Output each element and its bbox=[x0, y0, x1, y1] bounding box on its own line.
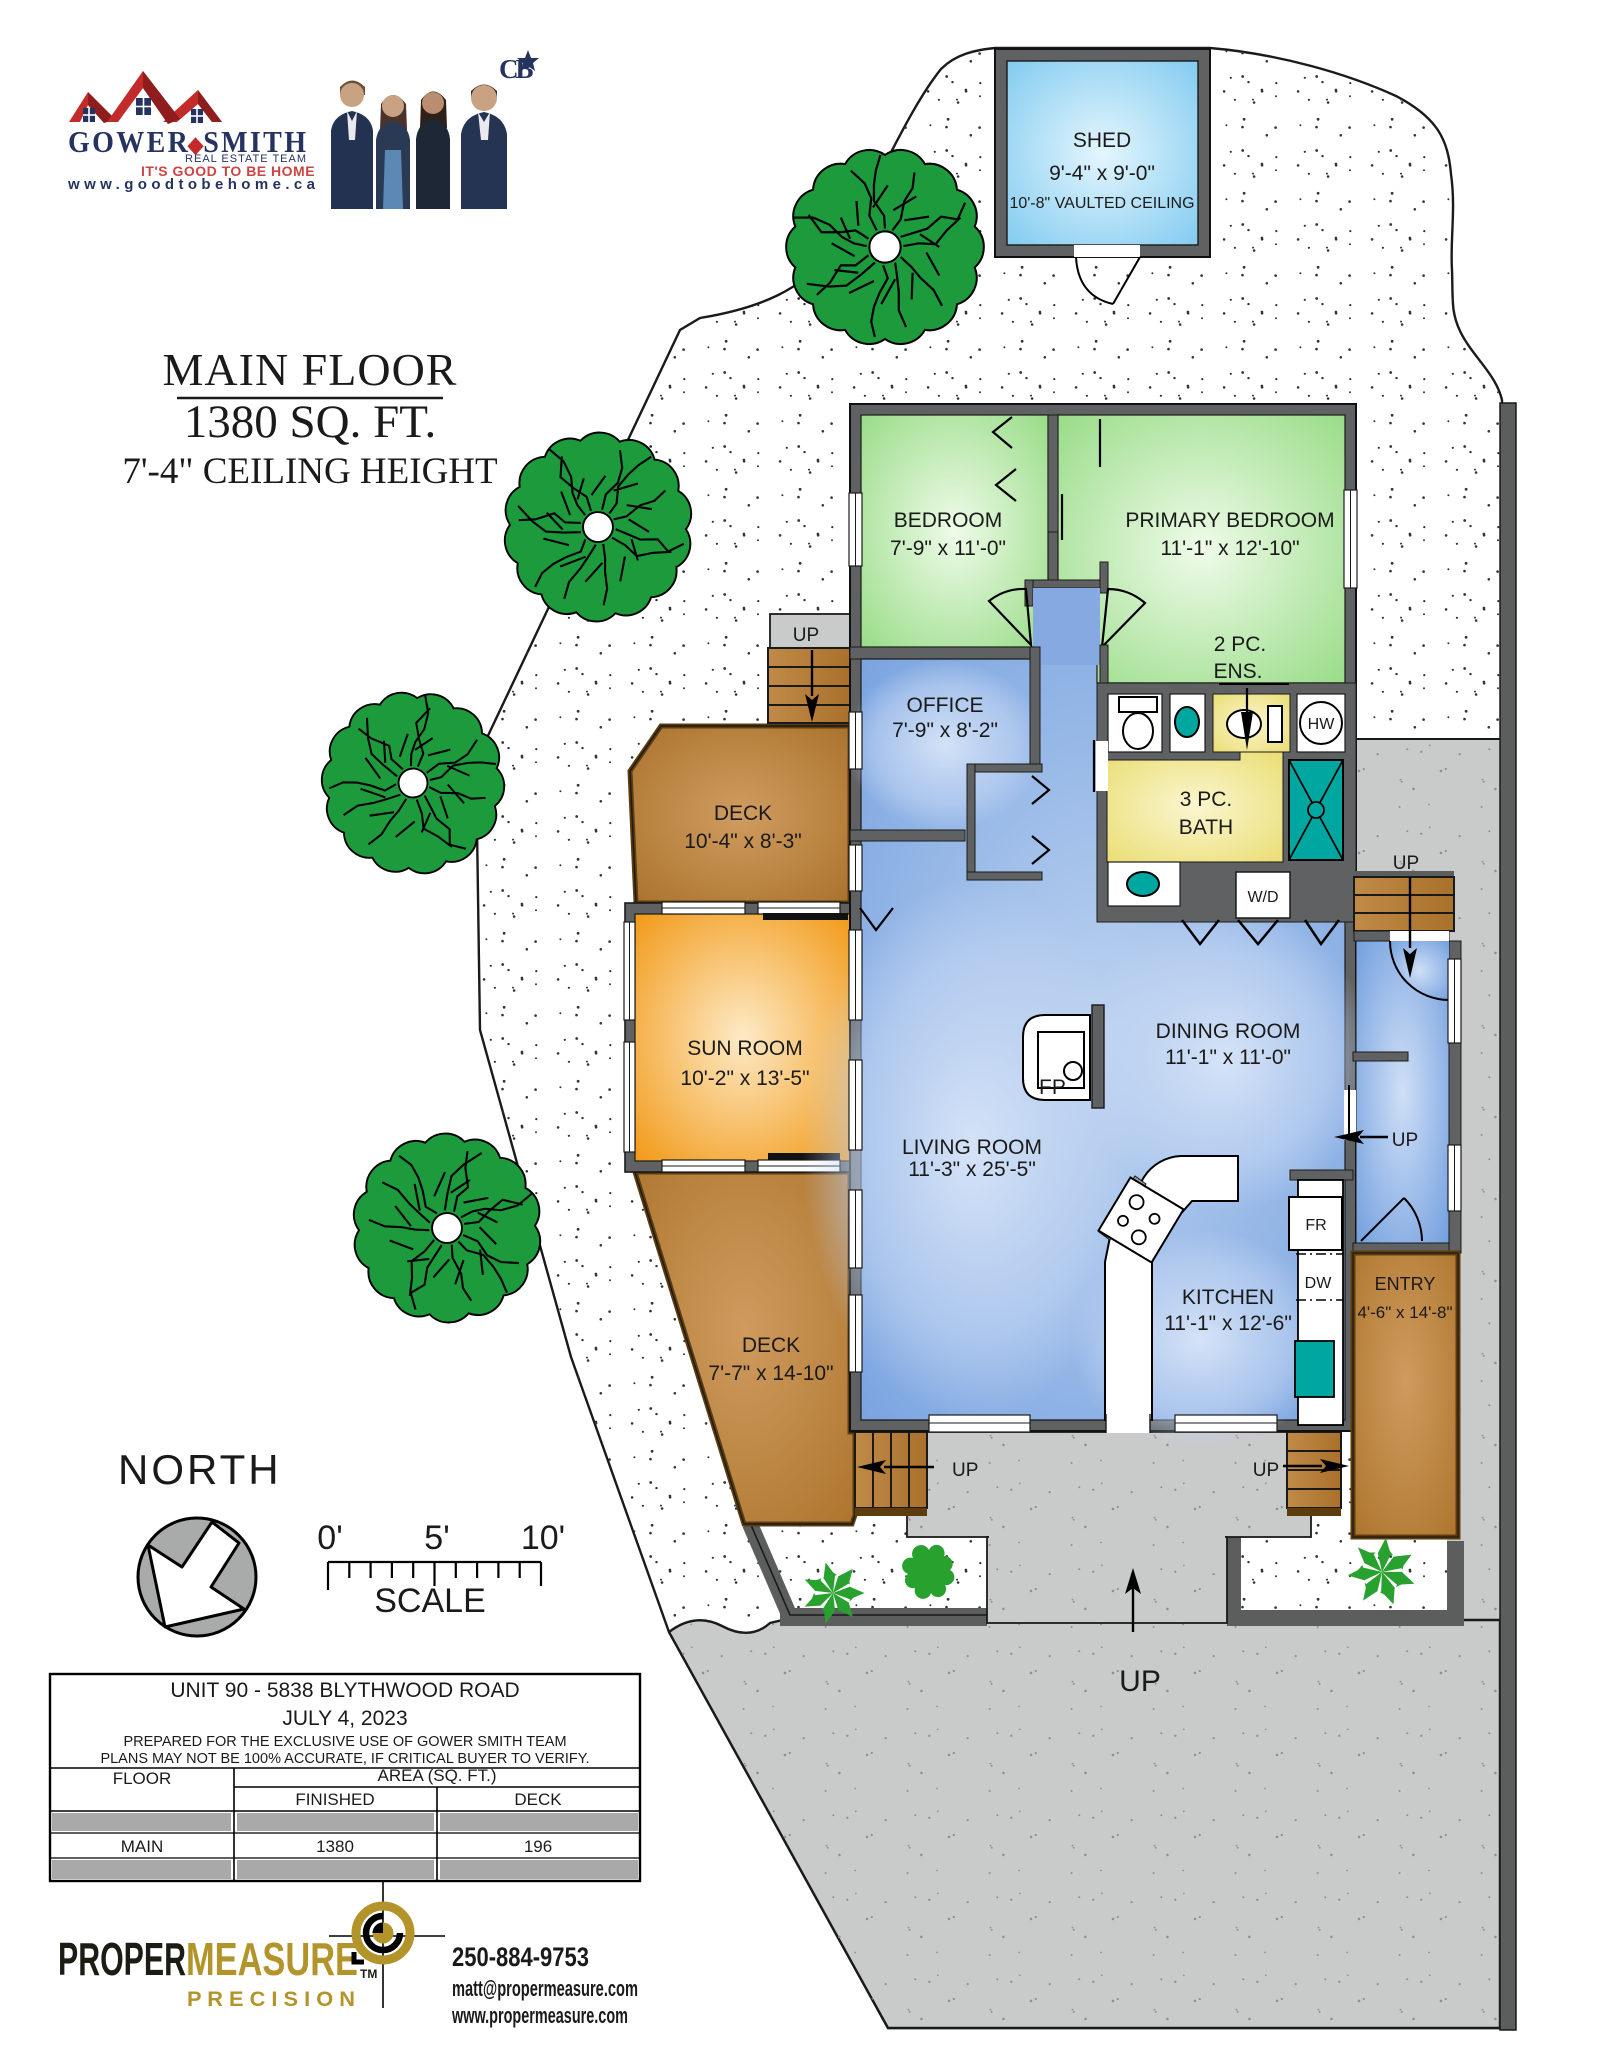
svg-text:PRIMARY BEDROOM: PRIMARY BEDROOM bbox=[1125, 509, 1334, 532]
svg-text:10': 10' bbox=[521, 1519, 565, 1557]
svg-text:UP: UP bbox=[1392, 1130, 1418, 1151]
svg-text:LIVING ROOM: LIVING ROOM bbox=[902, 1136, 1042, 1159]
svg-text:7'-9" x 8'-2": 7'-9" x 8'-2" bbox=[892, 719, 998, 742]
svg-text:10'-2" x 13'-5": 10'-2" x 13'-5" bbox=[680, 1067, 809, 1090]
svg-text:PLANS MAY NOT BE 100% ACCURATE: PLANS MAY NOT BE 100% ACCURATE, IF CRITI… bbox=[100, 1751, 589, 1767]
svg-text:KITCHEN: KITCHEN bbox=[1182, 1286, 1274, 1309]
svg-text:UNIT 90 - 5838 BLYTHWOOD ROAD: UNIT 90 - 5838 BLYTHWOOD ROAD bbox=[170, 1679, 519, 1702]
svg-text:7'-9" x 11'-0": 7'-9" x 11'-0" bbox=[890, 537, 1006, 560]
svg-text:SHED: SHED bbox=[1073, 129, 1131, 152]
svg-text:7'-7" x 14-10": 7'-7" x 14-10" bbox=[708, 1362, 833, 1385]
svg-text:1380 SQ. FT.: 1380 SQ. FT. bbox=[184, 396, 436, 448]
svg-text:UP: UP bbox=[793, 625, 819, 646]
svg-text:11'-1" x 12'-10": 11'-1" x 12'-10" bbox=[1160, 537, 1299, 560]
svg-text:MAIN FLOOR: MAIN FLOOR bbox=[163, 344, 458, 395]
svg-text:MAIN: MAIN bbox=[121, 1837, 164, 1856]
svg-text:NORTH: NORTH bbox=[118, 1446, 282, 1493]
svg-text:196: 196 bbox=[524, 1837, 552, 1856]
svg-text:PROPER: PROPER bbox=[58, 1933, 186, 1985]
svg-text:PREPARED FOR THE EXCLUSIVE USE: PREPARED FOR THE EXCLUSIVE USE OF GOWER … bbox=[123, 1734, 566, 1750]
svg-text:11'-3" x 25'-5": 11'-3" x 25'-5" bbox=[908, 1158, 1036, 1181]
svg-text:AREA (SQ. FT.): AREA (SQ. FT.) bbox=[377, 1766, 496, 1785]
svg-text:UP: UP bbox=[952, 1460, 978, 1481]
svg-text:DINING ROOM: DINING ROOM bbox=[1156, 1020, 1301, 1043]
svg-text:BATH: BATH bbox=[1179, 816, 1233, 839]
svg-text:3 PC.: 3 PC. bbox=[1180, 788, 1233, 811]
svg-text:P R E C I S I O N: P R E C I S I O N bbox=[187, 1988, 355, 2011]
svg-text:5': 5' bbox=[424, 1519, 449, 1557]
svg-text:250-884-9753: 250-884-9753 bbox=[452, 1942, 589, 1972]
svg-text:4'-6" x 14'-8": 4'-6" x 14'-8" bbox=[1357, 1303, 1452, 1322]
svg-text:www.goodtobehome.ca: www.goodtobehome.ca bbox=[67, 176, 319, 193]
svg-text:2 PC.: 2 PC. bbox=[1214, 633, 1267, 656]
svg-text:BEDROOM: BEDROOM bbox=[894, 509, 1003, 532]
svg-text:10'-8" VAULTED CEILING: 10'-8" VAULTED CEILING bbox=[1009, 195, 1194, 212]
svg-text:JULY 4, 2023: JULY 4, 2023 bbox=[282, 1707, 407, 1730]
svg-text:UP: UP bbox=[1253, 1460, 1279, 1481]
svg-text:SUN ROOM: SUN ROOM bbox=[687, 1037, 803, 1060]
svg-text:DECK: DECK bbox=[742, 1334, 800, 1357]
svg-text:OFFICE: OFFICE bbox=[907, 694, 984, 717]
svg-text:FP: FP bbox=[1039, 1076, 1066, 1099]
svg-text:HW: HW bbox=[1308, 716, 1336, 733]
svg-text:SCALE: SCALE bbox=[374, 1582, 486, 1620]
svg-text:11'-1" x 11'-0": 11'-1" x 11'-0" bbox=[1165, 1046, 1291, 1069]
svg-text:UP: UP bbox=[1119, 1665, 1161, 1698]
svg-text:TM: TM bbox=[360, 1967, 377, 1981]
svg-text:11'-1" x 12'-6": 11'-1" x 12'-6" bbox=[1164, 1312, 1292, 1335]
svg-text:matt@propermeasure.com: matt@propermeasure.com bbox=[452, 1976, 638, 2001]
svg-text:MEASURE: MEASURE bbox=[186, 1933, 358, 1985]
svg-text:DECK: DECK bbox=[714, 802, 772, 825]
svg-text:9'-4" x 9'-0": 9'-4" x 9'-0" bbox=[1049, 162, 1155, 185]
svg-text:FINISHED: FINISHED bbox=[295, 1790, 374, 1809]
svg-text:ENS.: ENS. bbox=[1213, 660, 1262, 683]
svg-text:www.propermeasure.com: www.propermeasure.com bbox=[451, 2003, 628, 2028]
svg-text:FLOOR: FLOOR bbox=[113, 1769, 172, 1788]
svg-text:7'-4" CEILING HEIGHT: 7'-4" CEILING HEIGHT bbox=[122, 451, 497, 492]
svg-text:ENTRY: ENTRY bbox=[1375, 1274, 1436, 1294]
svg-text:W/D: W/D bbox=[1247, 889, 1278, 906]
svg-text:UP: UP bbox=[1393, 853, 1419, 874]
svg-text:10'-4" x 8'-3": 10'-4" x 8'-3" bbox=[684, 830, 801, 853]
svg-text:DW: DW bbox=[1305, 1275, 1333, 1292]
svg-text:DECK: DECK bbox=[514, 1790, 562, 1809]
svg-text:FR: FR bbox=[1305, 1217, 1326, 1234]
svg-text:0': 0' bbox=[317, 1519, 342, 1557]
svg-text:1380: 1380 bbox=[316, 1837, 354, 1856]
